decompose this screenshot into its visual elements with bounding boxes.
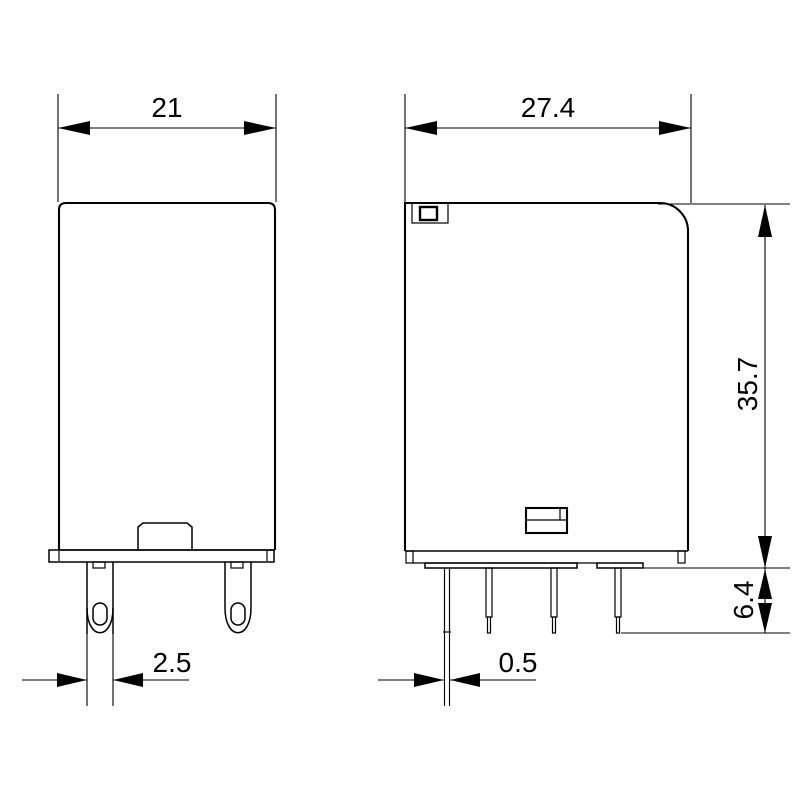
drawing-svg: 21	[0, 0, 800, 800]
pin-shaft	[551, 568, 557, 617]
dimension-arrow-top	[758, 569, 772, 599]
front-right-terminal	[225, 562, 251, 633]
pin-tip	[553, 617, 556, 633]
dimension-arrow-right	[113, 673, 143, 687]
terminal-outline	[225, 562, 251, 633]
side-bottom-latch-detail	[526, 508, 567, 533]
body-height-dimension: 35.7	[643, 204, 790, 568]
front-body-outline	[59, 203, 275, 550]
front-terminal-width-dimension: 2.5	[22, 634, 191, 706]
dimension-label: 6.4	[728, 581, 759, 620]
side-base-flange	[406, 551, 685, 568]
dimension-label: 35.7	[732, 357, 763, 412]
dimension-arrow-bottom	[758, 536, 772, 568]
dimension-label: 2.5	[153, 647, 192, 678]
pin-shaft	[615, 568, 621, 617]
pin-tip	[488, 617, 491, 633]
terminal-hole	[231, 603, 245, 625]
front-bottom-notch	[138, 523, 192, 550]
dimension-arrow-left	[58, 121, 90, 135]
dimension-arrow-top	[758, 205, 772, 237]
dimension-arrow-right	[659, 121, 691, 135]
dimension-arrow-left	[405, 121, 437, 135]
flange-lip-main	[425, 563, 577, 568]
front-view: 21	[22, 92, 276, 706]
flange-lip-right	[597, 563, 643, 568]
side-pin-4	[615, 568, 621, 633]
dimension-arrow-left	[414, 673, 444, 687]
side-body-outline	[405, 203, 688, 551]
terminal-hole	[93, 603, 107, 625]
dimension-arrow-right	[244, 121, 276, 135]
pin-shaft	[486, 568, 492, 617]
terminal-top-notch	[93, 562, 105, 568]
side-pin-3	[551, 568, 557, 633]
dimension-label: 21	[151, 92, 182, 123]
front-base-flange	[49, 550, 274, 562]
flange-step-right	[678, 551, 685, 563]
side-view: 27.4	[378, 92, 790, 706]
pin-thickness-dimension: 0.5	[378, 632, 537, 706]
side-pin-measured	[443, 568, 451, 632]
relay-dimension-drawing: 21	[0, 0, 800, 800]
terminal-rounded-tip	[87, 608, 113, 633]
side-width-dimension: 27.4	[405, 92, 691, 203]
flange-outline	[49, 550, 274, 562]
dimension-label: 0.5	[499, 647, 538, 678]
pin-tip	[617, 617, 620, 633]
terminal-top-notch	[231, 562, 243, 568]
front-width-dimension: 21	[58, 92, 276, 202]
dimension-arrow-right	[450, 673, 480, 687]
dimension-arrow-left	[57, 673, 87, 687]
side-top-latch-detail	[412, 203, 448, 223]
terminal-length-dimension: 6.4	[621, 568, 790, 633]
front-left-terminal	[87, 562, 113, 634]
side-pin-2	[486, 568, 492, 633]
dimension-label: 27.4	[521, 92, 576, 123]
latch-inner-square	[420, 207, 437, 220]
flange-step-left	[406, 551, 413, 563]
dimension-arrow-bottom	[758, 603, 772, 633]
